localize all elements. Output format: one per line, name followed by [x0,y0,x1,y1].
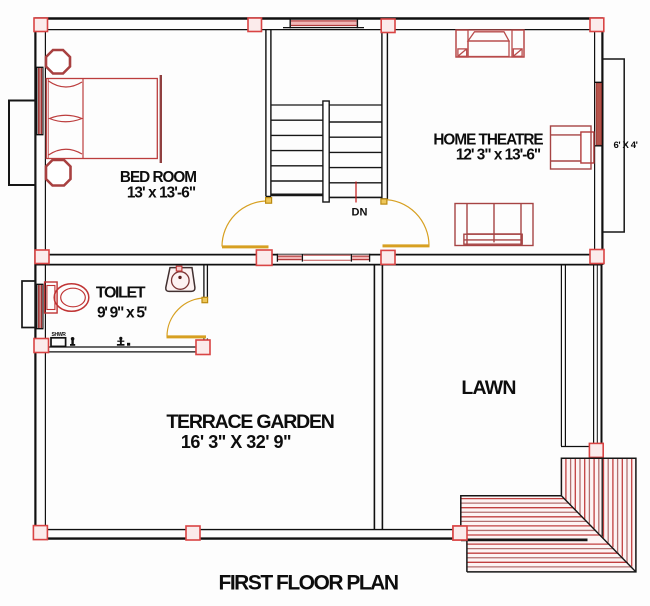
svg-text:16' 3" X 32' 9": 16' 3" X 32' 9" [181,432,291,452]
svg-text:FIRST FLOOR PLAN: FIRST FLOOR PLAN [219,572,398,595]
svg-text:9' 9" x 5': 9' 9" x 5' [97,305,147,322]
svg-text:SHWR: SHWR [52,332,67,338]
svg-text:TOILET: TOILET [96,285,146,302]
svg-text:12' 3" x 13'-6": 12' 3" x 13'-6" [456,147,541,164]
svg-text:6' X 4': 6' X 4' [614,140,638,151]
svg-text:13' x 13'-6": 13' x 13'-6" [127,185,196,202]
svg-text:BED ROOM: BED ROOM [120,169,196,186]
svg-text:TERRACE GARDEN: TERRACE GARDEN [166,411,333,433]
svg-text:DN: DN [352,207,368,219]
svg-text:LAWN: LAWN [461,377,515,399]
